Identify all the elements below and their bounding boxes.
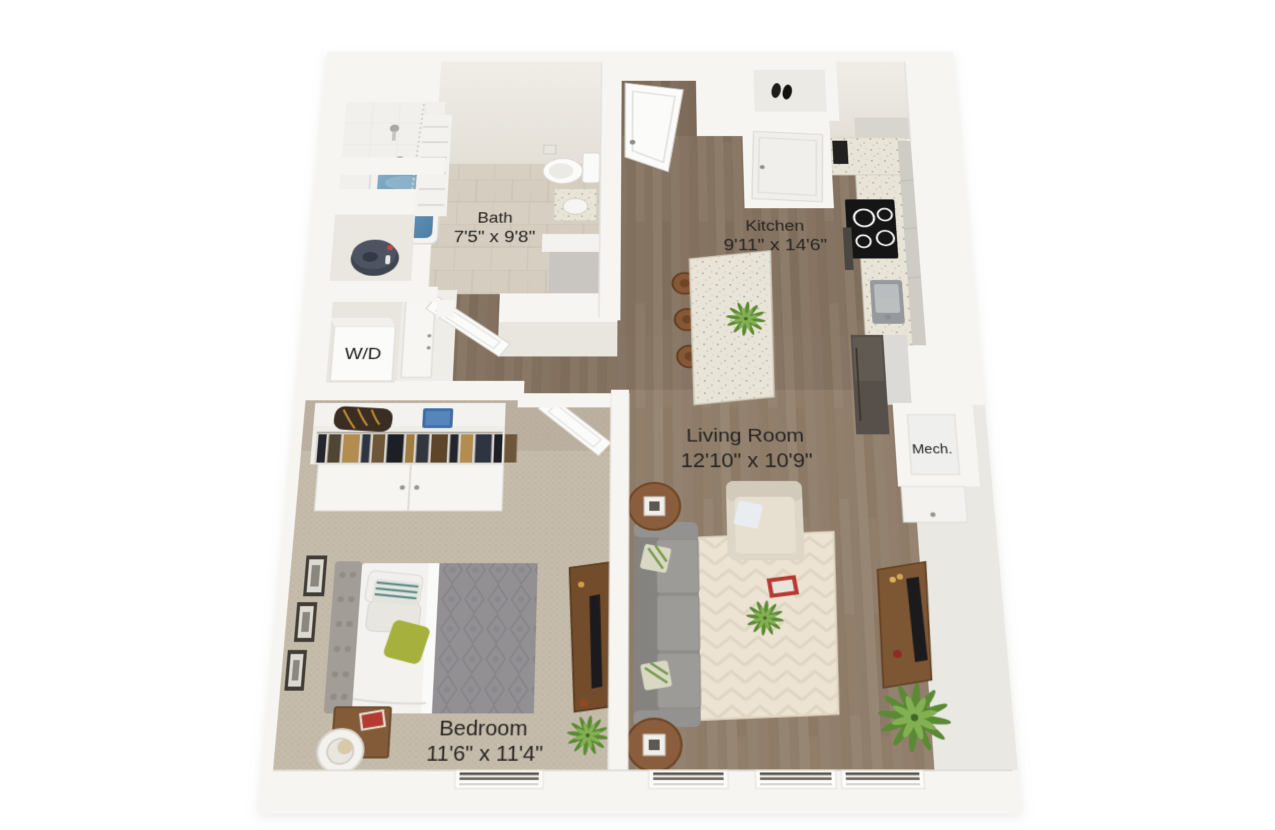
- svg-text:Mech.: Mech.: [911, 441, 952, 456]
- svg-text:Bedroom: Bedroom: [438, 717, 527, 740]
- svg-text:Bath: Bath: [477, 210, 513, 226]
- svg-text:12'10" x 10'9": 12'10" x 10'9": [680, 450, 813, 472]
- svg-text:Kitchen: Kitchen: [745, 218, 805, 235]
- svg-text:11'6" x 11'4": 11'6" x 11'4": [425, 742, 543, 766]
- svg-text:7'5" x 9'8": 7'5" x 9'8": [453, 228, 535, 246]
- svg-text:9'11" x 14'6": 9'11" x 14'6": [723, 236, 828, 254]
- svg-text:W/D: W/D: [344, 345, 382, 363]
- svg-text:Living Room: Living Room: [686, 426, 804, 447]
